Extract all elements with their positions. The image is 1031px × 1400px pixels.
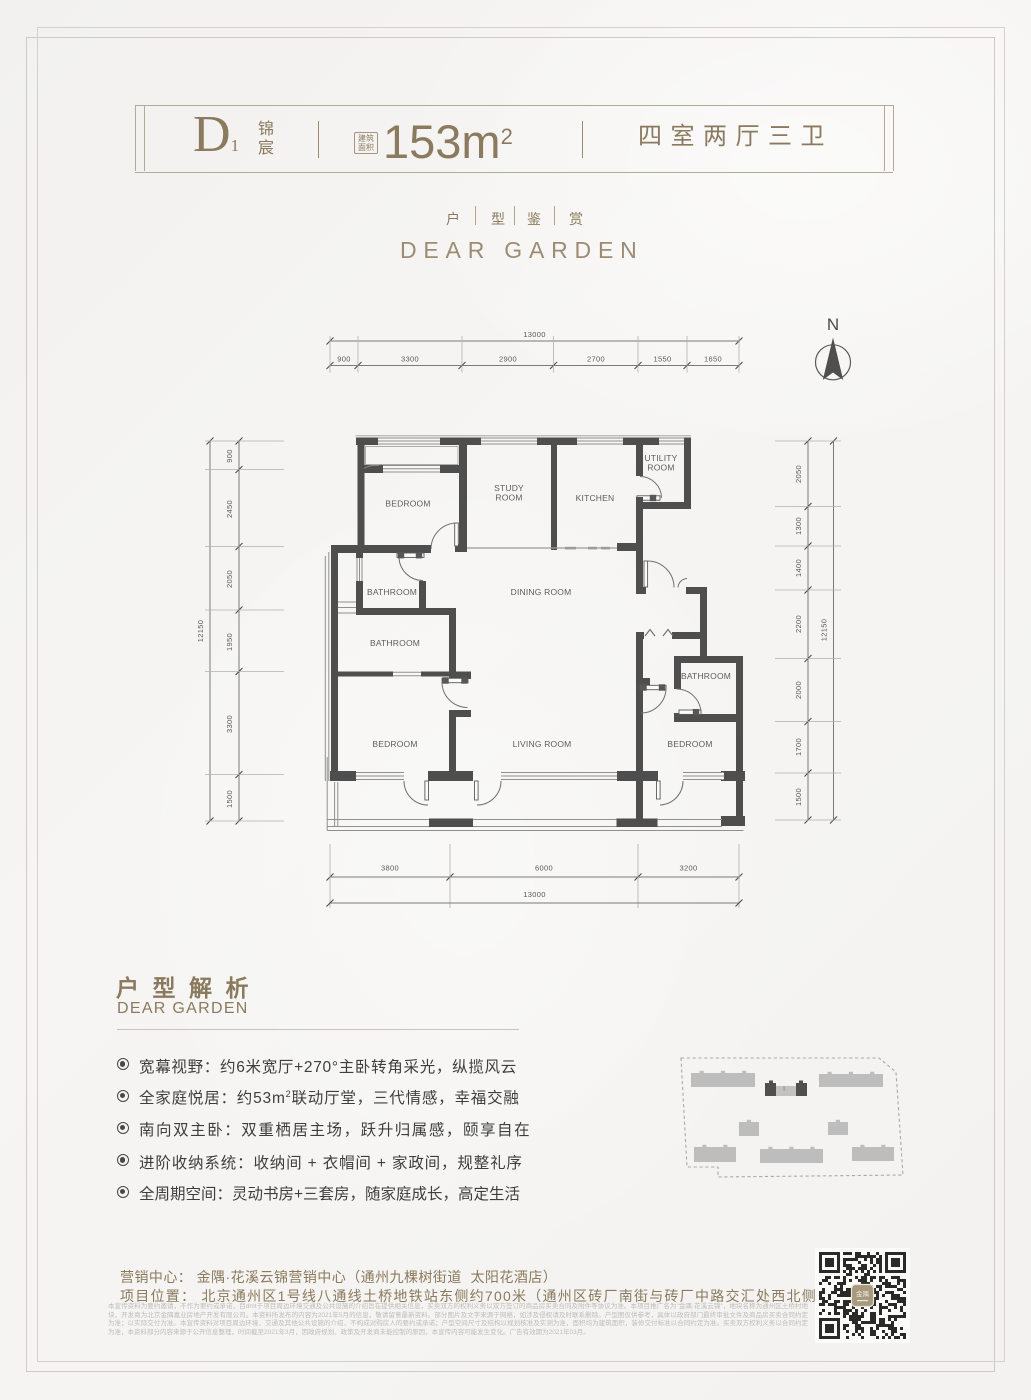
svg-text:金隅: 金隅 <box>856 1289 870 1298</box>
